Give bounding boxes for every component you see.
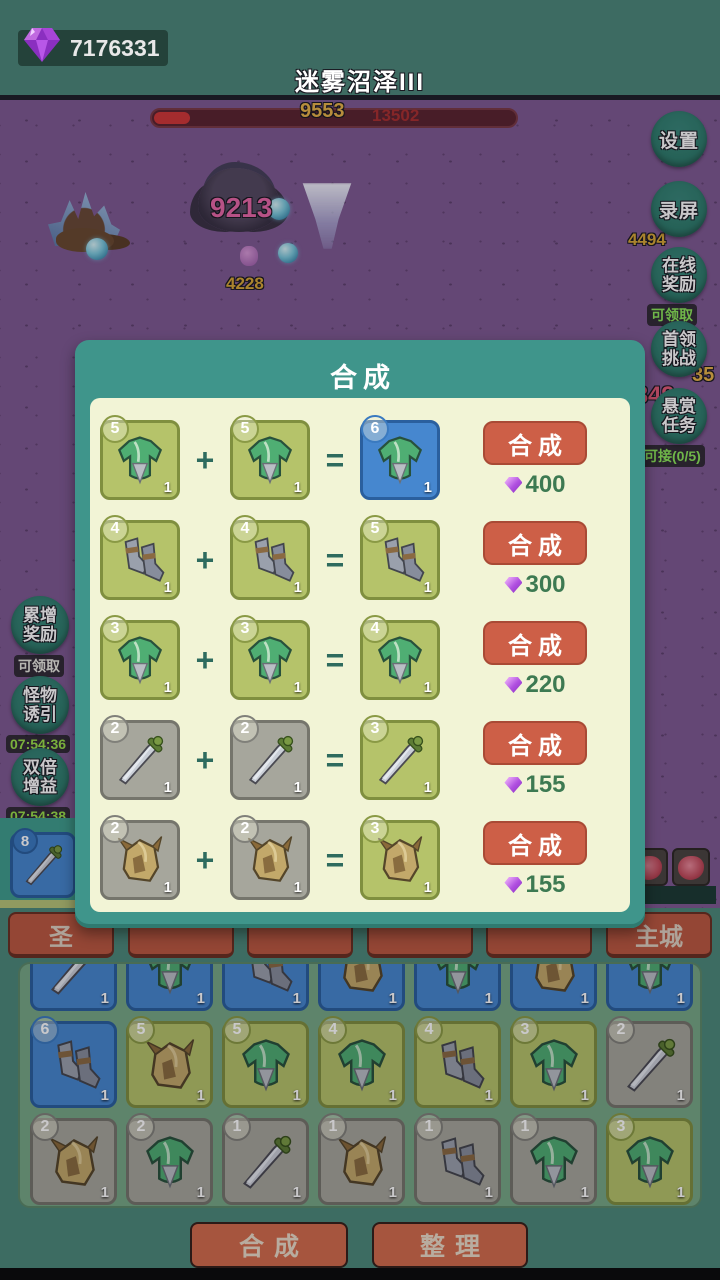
item-slot-boots[interactable]: 11 [414, 1118, 501, 1205]
item-quantity: 1 [424, 679, 432, 696]
item-slot-armor[interactable]: 21 [126, 1118, 213, 1205]
sort-button[interactable]: 整理 [372, 1222, 528, 1268]
helmet-icon [42, 1130, 105, 1193]
item-quantity: 1 [485, 1184, 493, 1201]
item-slot-boots[interactable]: 41 [414, 1021, 501, 1108]
craft-cost-value: 155 [525, 871, 565, 899]
item-quantity: 1 [581, 1087, 589, 1104]
orb-sprite [278, 243, 298, 263]
craft-column: 合成155 [440, 721, 630, 799]
armor-icon [138, 962, 201, 999]
craft-column: 合成300 [440, 521, 630, 599]
item-quantity: 1 [293, 1087, 301, 1104]
item-slot-helmet[interactable]: 11 [318, 1118, 405, 1205]
level-badge: 3 [607, 1113, 635, 1141]
sword-icon [618, 1033, 681, 1096]
gem-icon [504, 677, 522, 693]
synthesis-row: 21+21=31合成155 [100, 810, 630, 910]
item-slot-armor[interactable]: 1 [606, 962, 693, 1011]
item-quantity: 1 [294, 779, 302, 796]
craft-column: 合成155 [440, 821, 630, 899]
bottom-panel: 圣主城 11111116151514141312121211111111131 … [0, 908, 720, 1280]
boss-hp-fill [154, 112, 190, 124]
item-slot-boots[interactable]: 51 [360, 520, 440, 600]
level-badge: 2 [231, 715, 259, 743]
skill-icon-2[interactable] [672, 848, 710, 886]
item-quantity: 1 [424, 579, 432, 596]
level-badge: 5 [223, 1016, 251, 1044]
level-badge: 4 [231, 515, 259, 543]
armor-icon [522, 1033, 585, 1096]
synthesis-row: 41+41=51合成300 [100, 510, 630, 610]
item-quantity: 1 [389, 1184, 397, 1201]
helmet-icon [330, 962, 393, 999]
level-badge: 2 [127, 1113, 155, 1141]
boots-icon [426, 1130, 489, 1193]
inventory-row: 61515141413121 [30, 1021, 690, 1108]
synthesis-row: 51+51=61合成400 [100, 410, 630, 510]
boss-hp-current: 9553 [300, 100, 345, 123]
item-quantity: 1 [294, 579, 302, 596]
item-quantity: 1 [424, 879, 432, 896]
damage-number: 9213 [210, 192, 272, 224]
gem-icon [504, 577, 522, 593]
item-slot-armor[interactable]: 61 [360, 420, 440, 500]
equals-sign: = [310, 842, 360, 879]
bounty-task-button-status: 可接(0/5) [640, 445, 705, 467]
plus-sign: + [180, 842, 230, 879]
equals-sign: = [310, 442, 360, 479]
item-quantity: 1 [293, 990, 301, 1007]
level-badge: 5 [231, 415, 259, 443]
item-quantity: 1 [424, 779, 432, 796]
gem-counter: 7176331 [18, 30, 168, 66]
item-slot-boots[interactable]: 41 [230, 520, 310, 600]
plus-sign: + [180, 742, 230, 779]
craft-cost: 220 [504, 671, 565, 699]
item-quantity: 1 [197, 1087, 205, 1104]
level-badge: 3 [511, 1016, 539, 1044]
gem-icon [504, 777, 522, 793]
craft-cost: 155 [504, 871, 565, 899]
tornado-sprite [298, 183, 356, 249]
gem-icon [504, 877, 522, 893]
record-button[interactable]: 录屏 [651, 181, 707, 237]
item-quantity: 1 [389, 990, 397, 1007]
equals-sign: = [310, 742, 360, 779]
level-badge: 6 [361, 415, 389, 443]
item-slot-helmet[interactable]: 21 [30, 1118, 117, 1205]
synthesis-row: 31+31=41合成220 [100, 610, 630, 710]
item-quantity: 1 [424, 479, 432, 496]
armor-icon [618, 962, 681, 999]
item-quantity: 1 [294, 479, 302, 496]
armor-icon [138, 1130, 201, 1193]
level-badge: 1 [415, 1113, 443, 1141]
item-quantity: 1 [101, 1087, 109, 1104]
damage-number: 4494 [628, 230, 666, 250]
inventory-grid: 11111116151514141312121211111111131 [18, 962, 702, 1208]
item-quantity: 1 [164, 779, 172, 796]
item-slot-armor[interactable]: 31 [510, 1021, 597, 1108]
item-slot-armor[interactable]: 51 [230, 420, 310, 500]
item-slot-sword[interactable]: 21 [100, 720, 180, 800]
sword-icon [234, 1130, 297, 1193]
level-badge: 1 [223, 1113, 251, 1141]
craft-button[interactable]: 合成 [190, 1222, 348, 1268]
settings-button[interactable]: 设置 [651, 111, 707, 167]
modal-title: 合成 [75, 356, 645, 395]
item-quantity: 1 [101, 990, 109, 1007]
item-slot-armor[interactable]: 41 [318, 1021, 405, 1108]
item-slot-armor[interactable]: 31 [230, 620, 310, 700]
level-badge: 2 [607, 1016, 635, 1044]
item-quantity: 1 [164, 579, 172, 596]
stack-reward-button[interactable]: 累增 奖励 [11, 596, 69, 654]
item-quantity: 1 [581, 1184, 589, 1201]
inventory-row: 1111111 [30, 962, 690, 1011]
gem-count: 7176331 [70, 35, 160, 62]
armor-icon [522, 1130, 585, 1193]
level-badge: 3 [361, 715, 389, 743]
damage-number: 4228 [226, 274, 264, 294]
stack-reward-button-status: 可领取 [14, 655, 64, 677]
sword-icon [42, 962, 105, 999]
row-craft-button[interactable]: 合成 [483, 721, 587, 765]
boots-icon [42, 1033, 105, 1096]
item-slot-boots[interactable]: 41 [100, 520, 180, 600]
craft-cost-value: 155 [525, 771, 565, 799]
item-quantity: 1 [677, 990, 685, 1007]
item-quantity: 1 [164, 679, 172, 696]
item-quantity: 1 [485, 1087, 493, 1104]
top-bar: 7176331 迷雾沼泽III [0, 0, 720, 95]
orb-sprite [86, 238, 108, 260]
item-quantity: 1 [581, 990, 589, 1007]
inventory-row: 21211111111131 [30, 1118, 690, 1205]
level-badge: 5 [361, 515, 389, 543]
item-quantity: 1 [677, 1184, 685, 1201]
item-slot-sword[interactable]: 21 [230, 720, 310, 800]
boss-hp-total: 13502 [372, 106, 419, 126]
item-slot-helmet[interactable]: 31 [360, 820, 440, 900]
level-badge: 4 [101, 515, 129, 543]
online-reward-button[interactable]: 在线 奖励 [651, 247, 707, 303]
craft-column: 合成400 [440, 421, 630, 499]
level-badge: 3 [231, 615, 259, 643]
synthesis-list: 51+51=61合成40041+41=51合成30031+31=41合成2202… [90, 398, 630, 912]
level-badge: 4 [319, 1016, 347, 1044]
plus-sign: + [180, 642, 230, 679]
level-badge: 4 [361, 615, 389, 643]
equals-sign: = [310, 642, 360, 679]
game-screen: 9553 13502 9213422844943510849 设置录屏在线 奖励… [0, 0, 720, 1280]
level-badge: 5 [101, 415, 129, 443]
level-badge: 5 [127, 1016, 155, 1044]
row-craft-button[interactable]: 合成 [483, 821, 587, 865]
item-slot-armor[interactable]: 31 [606, 1118, 693, 1205]
item-quantity: 1 [294, 879, 302, 896]
item-slot-helmet[interactable]: 21 [100, 820, 180, 900]
item-quantity: 1 [101, 1184, 109, 1201]
helmet-icon [330, 1130, 393, 1193]
craft-cost-value: 300 [525, 571, 565, 599]
item-slot-helmet[interactable]: 1 [510, 962, 597, 1011]
level-badge: 2 [101, 715, 129, 743]
equals-sign: = [310, 542, 360, 579]
item-quantity: 1 [294, 679, 302, 696]
item-slot-sword[interactable]: 31 [360, 720, 440, 800]
item-quantity: 1 [164, 879, 172, 896]
level-badge: 1 [511, 1113, 539, 1141]
armor-icon [234, 1033, 297, 1096]
row-craft-button[interactable]: 合成 [483, 621, 587, 665]
item-slot-armor[interactable]: 11 [510, 1118, 597, 1205]
item-quantity: 1 [485, 990, 493, 1007]
item-slot-helmet[interactable]: 21 [230, 820, 310, 900]
synthesis-modal: 合成 51+51=61合成40041+41=51合成30031+31=41合成2… [75, 340, 645, 928]
item-slot-armor[interactable]: 1 [126, 962, 213, 1011]
helmet-icon [522, 962, 585, 999]
equipped-level-badge: 8 [12, 828, 38, 854]
item-quantity: 1 [164, 479, 172, 496]
level-badge: 2 [101, 815, 129, 843]
monster-lure-button[interactable]: 怪物 诱引 [11, 676, 69, 734]
item-slot-boots[interactable]: 1 [222, 962, 309, 1011]
item-slot-armor[interactable]: 51 [222, 1021, 309, 1108]
item-quantity: 1 [293, 1184, 301, 1201]
item-slot-armor[interactable]: 31 [100, 620, 180, 700]
item-slot-helmet[interactable]: 1 [318, 962, 405, 1011]
boss-challenge-button[interactable]: 首领 挑战 [651, 321, 707, 377]
gem-icon [504, 477, 522, 493]
level-badge: 6 [31, 1016, 59, 1044]
item-slot-sword[interactable]: 11 [222, 1118, 309, 1205]
level-badge: 1 [319, 1113, 347, 1141]
item-quantity: 1 [389, 1087, 397, 1104]
level-badge: 3 [101, 615, 129, 643]
item-quantity: 1 [197, 990, 205, 1007]
level-badge: 3 [361, 815, 389, 843]
boots-icon [426, 1033, 489, 1096]
stage-title: 迷雾沼泽III [0, 62, 720, 97]
item-slot-sword[interactable]: 21 [606, 1021, 693, 1108]
level-badge: 4 [415, 1016, 443, 1044]
craft-cost: 155 [504, 771, 565, 799]
craft-cost: 400 [504, 471, 565, 499]
armor-icon [330, 1033, 393, 1096]
craft-cost-value: 220 [525, 671, 565, 699]
item-slot-sword[interactable]: 1 [30, 962, 117, 1011]
item-slot-helmet[interactable]: 51 [126, 1021, 213, 1108]
helmet-icon [138, 1033, 201, 1096]
item-slot-armor[interactable]: 41 [360, 620, 440, 700]
level-badge: 2 [31, 1113, 59, 1141]
bottom-black-bar [0, 1268, 720, 1280]
item-slot-armor[interactable]: 1 [414, 962, 501, 1011]
item-slot-armor[interactable]: 51 [100, 420, 180, 500]
boots-icon [234, 962, 297, 999]
craft-cost-value: 400 [525, 471, 565, 499]
bounty-task-button[interactable]: 悬赏 任务 [651, 388, 707, 444]
plus-sign: + [180, 542, 230, 579]
row-craft-button[interactable]: 合成 [483, 421, 587, 465]
synthesis-row: 21+21=31合成155 [100, 710, 630, 810]
gem-icon [22, 24, 62, 64]
armor-icon [426, 962, 489, 999]
craft-column: 合成220 [440, 621, 630, 699]
craft-cost: 300 [504, 571, 565, 599]
equipped-item-slot[interactable]: 8 [10, 832, 78, 896]
level-badge: 2 [231, 815, 259, 843]
row-craft-button[interactable]: 合成 [483, 521, 587, 565]
double-gain-button[interactable]: 双倍 增益 [11, 748, 69, 806]
item-quantity: 1 [197, 1184, 205, 1201]
armor-icon [618, 1130, 681, 1193]
plus-sign: + [180, 442, 230, 479]
small-monster-sprite [240, 246, 258, 266]
item-slot-boots[interactable]: 61 [30, 1021, 117, 1108]
flower-icon [678, 856, 704, 880]
item-quantity: 1 [677, 1087, 685, 1104]
